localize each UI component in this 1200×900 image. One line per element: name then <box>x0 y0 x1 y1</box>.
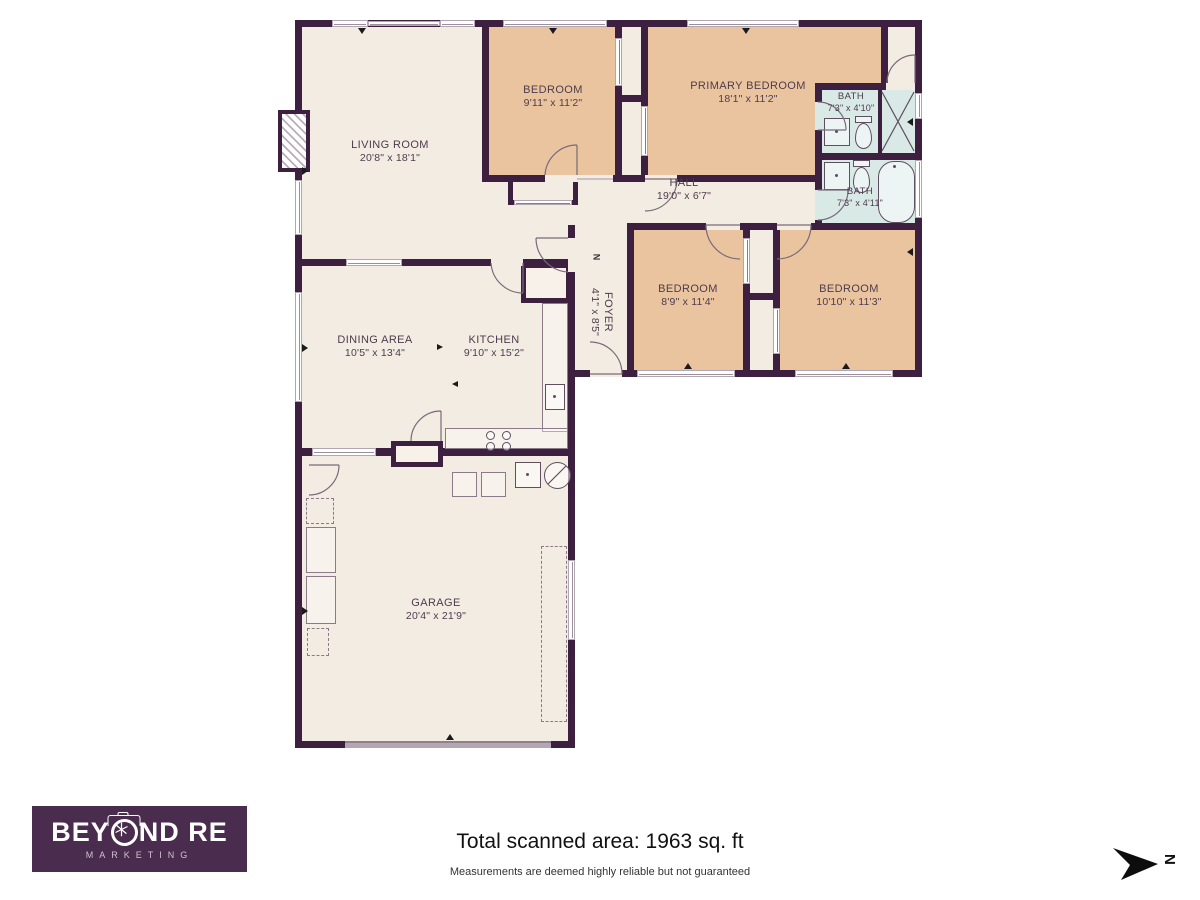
wall <box>627 223 634 377</box>
dining-closet <box>391 441 443 467</box>
room-label-kitchen: KITCHEN 9'10" x 15'2" <box>464 333 524 361</box>
pantry-closet <box>521 263 571 303</box>
stove-burner <box>486 442 495 451</box>
storage-cabinet <box>306 527 336 573</box>
closet-sliding-door <box>641 106 648 156</box>
wall <box>743 293 780 300</box>
door-opening <box>886 83 915 90</box>
door-opening <box>568 238 575 272</box>
wall <box>615 95 648 102</box>
room-name: BATH <box>837 186 883 198</box>
fireplace <box>278 110 310 172</box>
toilet-tank <box>853 160 870 167</box>
room-dims: 9'10" x 15'2" <box>464 347 524 361</box>
front-door-opening <box>590 370 622 377</box>
window <box>368 21 440 26</box>
wall <box>482 20 489 182</box>
window <box>568 560 575 640</box>
window <box>795 370 893 377</box>
garage-door <box>345 741 551 748</box>
sink-drain <box>526 473 529 476</box>
window <box>295 180 302 235</box>
wall <box>815 153 922 160</box>
total-area-text: Total scanned area: 1963 sq. ft <box>0 830 1200 854</box>
room-name: BEDROOM <box>816 282 881 296</box>
door-opening <box>777 223 811 230</box>
room-name: GARAGE <box>406 596 466 610</box>
room-dims: 20'4" x 21'9" <box>406 610 466 624</box>
room-dims: 19'0" x 6'7" <box>657 190 711 204</box>
window <box>687 20 799 27</box>
threshold <box>577 178 613 180</box>
stove-burner <box>486 431 495 440</box>
room-label-dining: DINING AREA 10'5" x 13'4" <box>337 333 412 361</box>
washer <box>452 472 477 497</box>
room-name: BEDROOM <box>658 282 718 296</box>
window <box>503 20 607 27</box>
window <box>440 20 475 27</box>
room-label-bedroom-right: BEDROOM 10'10" x 11'3" <box>816 282 881 310</box>
closet-sliding-door <box>743 238 750 284</box>
room-dims: 10'5" x 13'4" <box>337 347 412 361</box>
shower-divider-wall <box>878 90 882 153</box>
tub-faucet <box>893 165 896 168</box>
north-mark-small: N <box>591 254 601 261</box>
north-arrow: N <box>1105 840 1180 895</box>
wall <box>568 225 575 748</box>
floor-plan: LIVING ROOM 20'8" x 18'1" BEDROOM 9'11" … <box>0 0 1200 900</box>
storage-area <box>307 628 329 656</box>
door-opening <box>815 190 822 220</box>
room-label-bath-top: BATH 7'3" x 4'10" <box>828 91 875 115</box>
window <box>915 160 922 218</box>
disclaimer-text: Measurements are deemed highly reliable … <box>0 866 1200 878</box>
bathtub-fixture <box>878 161 915 223</box>
closet-top-right-floor <box>888 27 915 83</box>
room-dims: 7'3" x 4'11" <box>837 198 883 210</box>
room-name: PRIMARY BEDROOM <box>690 79 806 93</box>
room-label-bedroom-top: BEDROOM 9'11" x 11'2" <box>523 83 583 111</box>
room-dims: 4'1" x 8'5" <box>587 288 601 336</box>
room-name: HALL <box>657 176 711 190</box>
room-label-foyer: FOYER 4'1" x 8'5" <box>587 288 615 336</box>
room-name: FOYER <box>601 288 615 336</box>
room-label-garage: GARAGE 20'4" x 21'9" <box>406 596 466 624</box>
door-opening <box>706 223 740 230</box>
north-label: N <box>1161 854 1178 865</box>
room-dims: 18'1" x 11'2" <box>690 93 806 107</box>
toilet-tank <box>855 116 872 123</box>
sink-drain <box>835 130 838 133</box>
room-label-bath-bottom: BATH 7'3" x 4'11" <box>837 186 883 210</box>
sink-drain <box>835 174 838 177</box>
stove-burner <box>502 431 511 440</box>
room-name: BATH <box>828 91 875 103</box>
room-label-hall: HALL 19'0" x 6'7" <box>657 176 711 204</box>
closet-sliding-door <box>514 200 572 205</box>
window <box>346 259 402 266</box>
window <box>332 20 368 27</box>
storage-area <box>541 546 567 722</box>
room-dims: 8'9" x 11'4" <box>658 296 718 310</box>
dryer <box>481 472 506 497</box>
kitchen-counter <box>542 303 568 432</box>
room-label-primary: PRIMARY BEDROOM 18'1" x 11'2" <box>690 79 806 107</box>
floor-plan-page: LIVING ROOM 20'8" x 18'1" BEDROOM 9'11" … <box>0 0 1200 900</box>
window <box>915 93 922 119</box>
window <box>295 292 302 402</box>
wall <box>881 20 888 90</box>
door-opening <box>815 102 822 130</box>
storage-cabinet <box>306 576 336 624</box>
room-name: DINING AREA <box>337 333 412 347</box>
closet-sliding-door <box>773 308 780 354</box>
room-name: KITCHEN <box>464 333 524 347</box>
window <box>637 370 735 377</box>
toilet-fixture <box>855 123 872 149</box>
room-dims: 10'10" x 11'3" <box>816 296 881 310</box>
room-label-living: LIVING ROOM 20'8" x 18'1" <box>351 138 429 166</box>
north-arrow-icon <box>1113 848 1158 880</box>
room-dims: 20'8" x 18'1" <box>351 152 429 166</box>
sink-drain <box>553 395 556 398</box>
room-name: LIVING ROOM <box>351 138 429 152</box>
window <box>312 448 376 456</box>
room-dims: 7'3" x 4'10" <box>828 103 875 115</box>
door-opening <box>545 175 577 182</box>
room-dims: 9'11" x 11'2" <box>523 97 583 111</box>
room-name: BEDROOM <box>523 83 583 97</box>
storage-area <box>306 498 334 524</box>
closet-sliding-door <box>615 38 622 86</box>
water-heater <box>544 462 571 489</box>
door-opening <box>491 259 523 266</box>
stove-burner <box>502 442 511 451</box>
room-label-bedroom-mid: BEDROOM 8'9" x 11'4" <box>658 282 718 310</box>
